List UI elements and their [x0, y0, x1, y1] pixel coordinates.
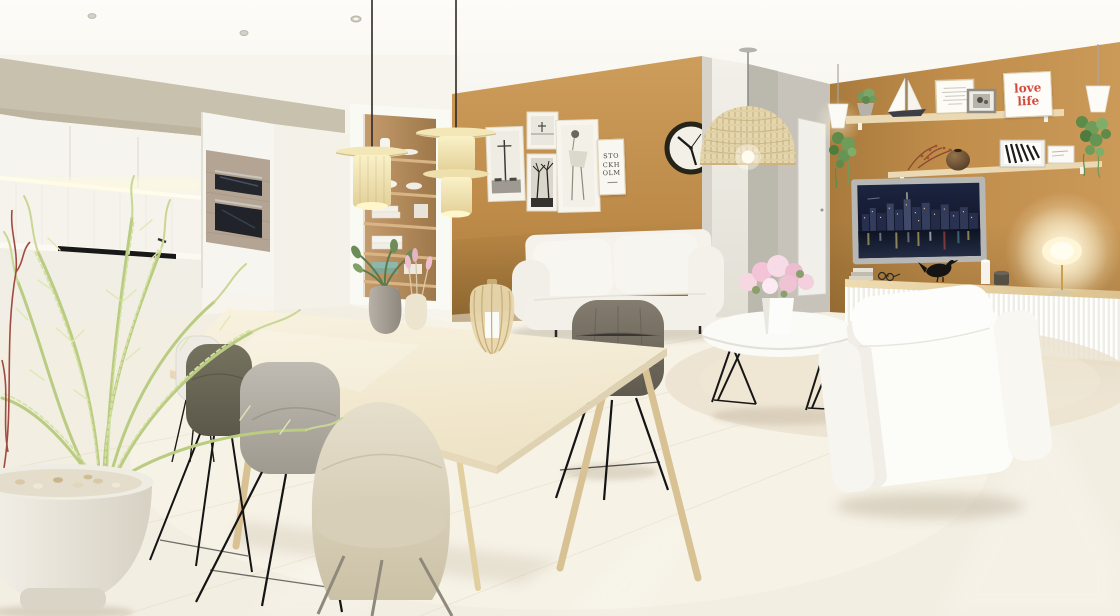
small-photo-frame [968, 90, 995, 112]
armchair-shadow [835, 493, 1025, 519]
pendant-bulb [742, 151, 755, 164]
seaside-cross-photo-frame [527, 112, 558, 149]
palm-trees-photo-frame [527, 154, 557, 211]
dining-chair-cream [312, 402, 452, 616]
kitchen-side-wall [274, 124, 352, 330]
zebra-photo-frame [1000, 140, 1045, 167]
apartment-interior-render: STO CKH OLM love life [0, 0, 1120, 616]
love-life-print: love life [1003, 71, 1053, 118]
stockholm-caption-line [607, 181, 617, 182]
wall-tv [851, 177, 987, 265]
love-life-line-2: life [1017, 94, 1039, 108]
small-jar [994, 271, 1009, 285]
stockholm-line-3: OLM [603, 169, 621, 178]
cone-sconce-lamp [828, 104, 848, 128]
street-lamp-photo-frame [486, 126, 526, 201]
gallery-frames [486, 112, 600, 213]
candle [981, 260, 990, 285]
tall-oven-unit [202, 112, 274, 298]
stockholm-typography-poster: STO CKH OLM [597, 139, 626, 196]
glowing-table-lamp [1016, 206, 1108, 298]
small-art-card [1048, 146, 1074, 163]
fashion-sketch-frame [556, 119, 600, 212]
